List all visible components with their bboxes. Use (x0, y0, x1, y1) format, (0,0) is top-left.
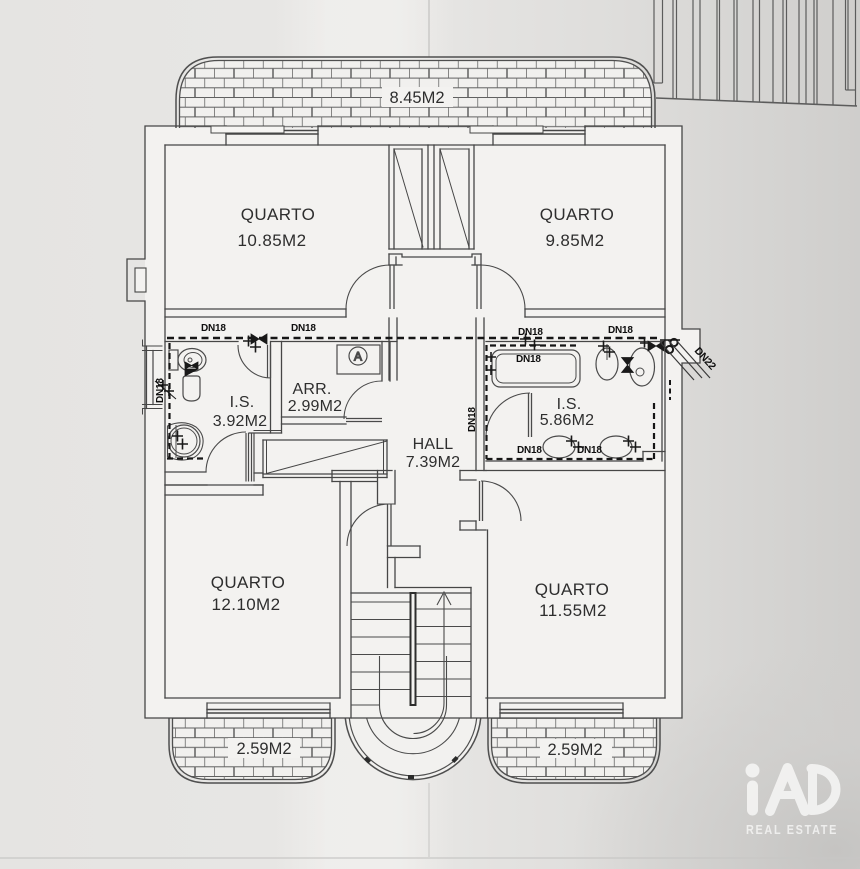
svg-text:DN18: DN18 (516, 354, 541, 365)
svg-text:REAL ESTATE: REAL ESTATE (746, 822, 838, 837)
svg-text:DN18: DN18 (467, 407, 478, 432)
svg-text:5.86M2: 5.86M2 (540, 412, 595, 429)
svg-text:2.99M2: 2.99M2 (288, 398, 343, 415)
svg-text:7.39M2: 7.39M2 (406, 454, 461, 471)
svg-text:12.10M2: 12.10M2 (212, 595, 281, 614)
svg-text:HALL: HALL (413, 436, 454, 453)
svg-text:2.59M2: 2.59M2 (236, 740, 291, 758)
svg-text:A: A (354, 350, 362, 364)
svg-text:9.85M2: 9.85M2 (545, 231, 604, 250)
svg-text:11.55M2: 11.55M2 (539, 601, 607, 620)
svg-text:DN18: DN18 (517, 445, 542, 456)
svg-text:QUARTO: QUARTO (535, 580, 610, 599)
svg-text:QUARTO: QUARTO (211, 573, 286, 592)
svg-text:3.92M2: 3.92M2 (213, 413, 268, 430)
svg-text:DN18: DN18 (608, 325, 633, 336)
svg-text:DN18: DN18 (291, 323, 316, 334)
svg-text:I.S.: I.S. (230, 394, 255, 411)
svg-text:DN18: DN18 (518, 327, 543, 338)
svg-text:QUARTO: QUARTO (241, 205, 316, 224)
svg-text:ARR.: ARR. (292, 381, 331, 398)
svg-text:DN18: DN18 (155, 378, 166, 403)
svg-text:QUARTO: QUARTO (540, 205, 615, 224)
svg-text:DN18: DN18 (201, 323, 226, 334)
svg-text:8.45M2: 8.45M2 (389, 89, 444, 107)
svg-text:I.S.: I.S. (557, 396, 582, 413)
svg-text:10.85M2: 10.85M2 (238, 231, 307, 250)
svg-text:DN18: DN18 (577, 445, 602, 456)
svg-text:2.59M2: 2.59M2 (547, 741, 602, 759)
